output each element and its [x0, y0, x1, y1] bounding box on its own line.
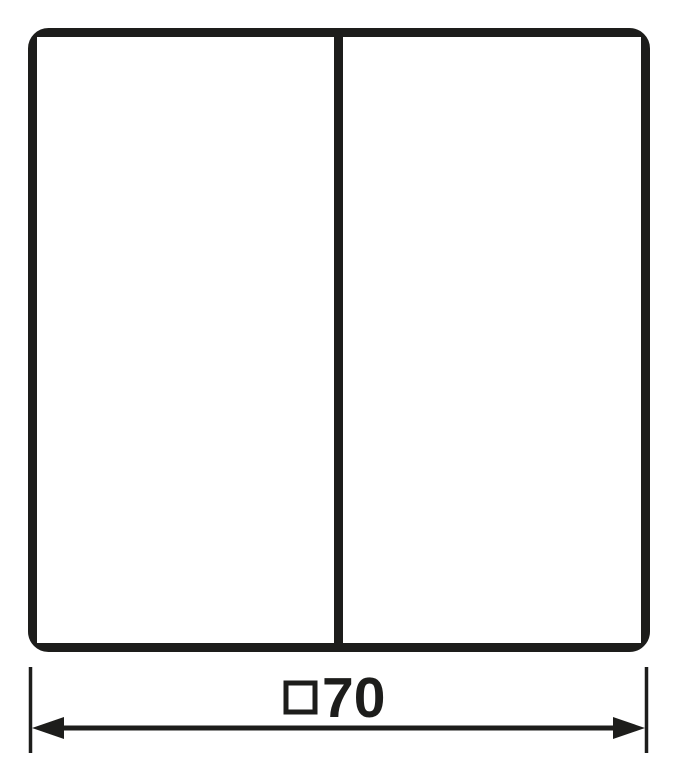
- square-symbol-icon: [286, 683, 315, 712]
- dimension-arrow-right-icon: [613, 717, 645, 739]
- rocker-right: [343, 37, 641, 643]
- dimension-drawing-svg: 70: [0, 0, 675, 776]
- dimension-arrow-left-icon: [32, 717, 64, 739]
- dimension-value: 70: [322, 666, 385, 730]
- dimension-label: 70: [286, 666, 385, 730]
- rocker-left: [37, 37, 334, 643]
- technical-drawing: 70: [0, 0, 675, 776]
